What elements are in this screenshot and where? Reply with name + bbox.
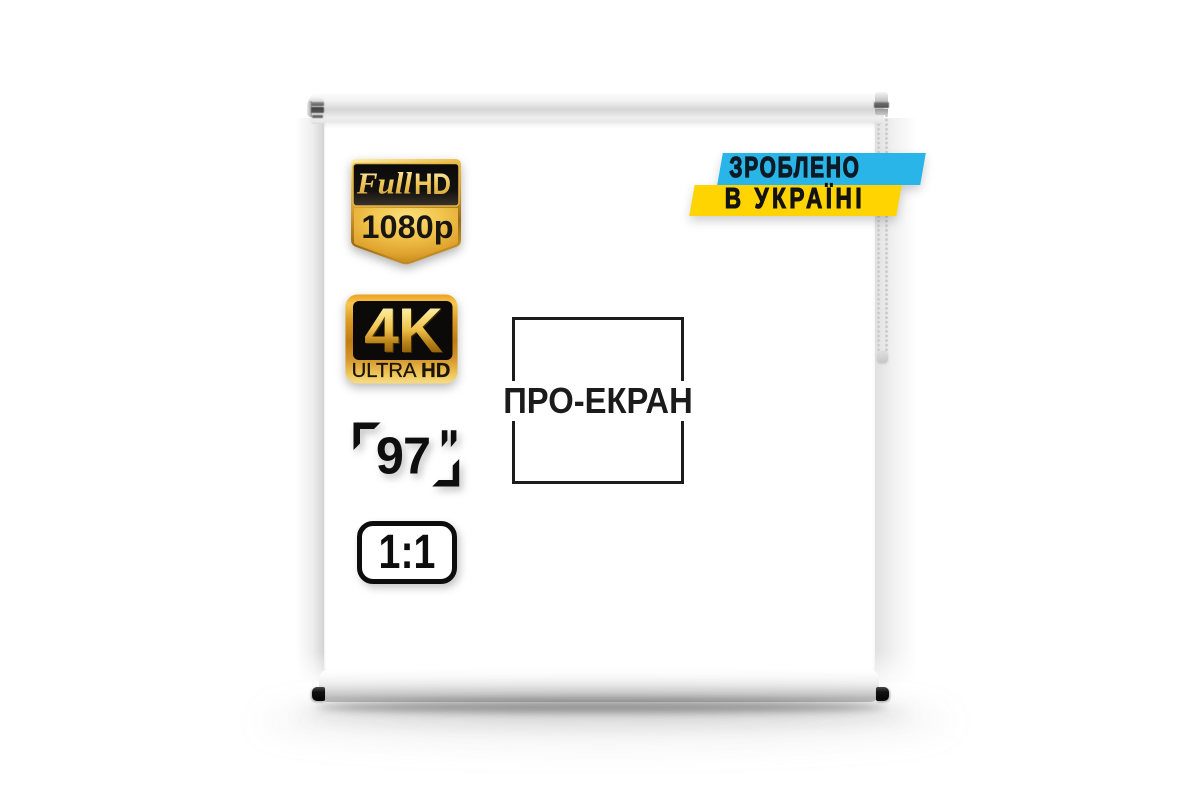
svg-text:4K: 4K (364, 296, 442, 366)
svg-text:1080p: 1080p (361, 209, 453, 245)
svg-text:ULTRA HD: ULTRA HD (352, 360, 451, 382)
svg-text:HD: HD (414, 167, 451, 200)
svg-text:Full: Full (356, 166, 413, 201)
svg-text:97: 97 (376, 427, 430, 485)
